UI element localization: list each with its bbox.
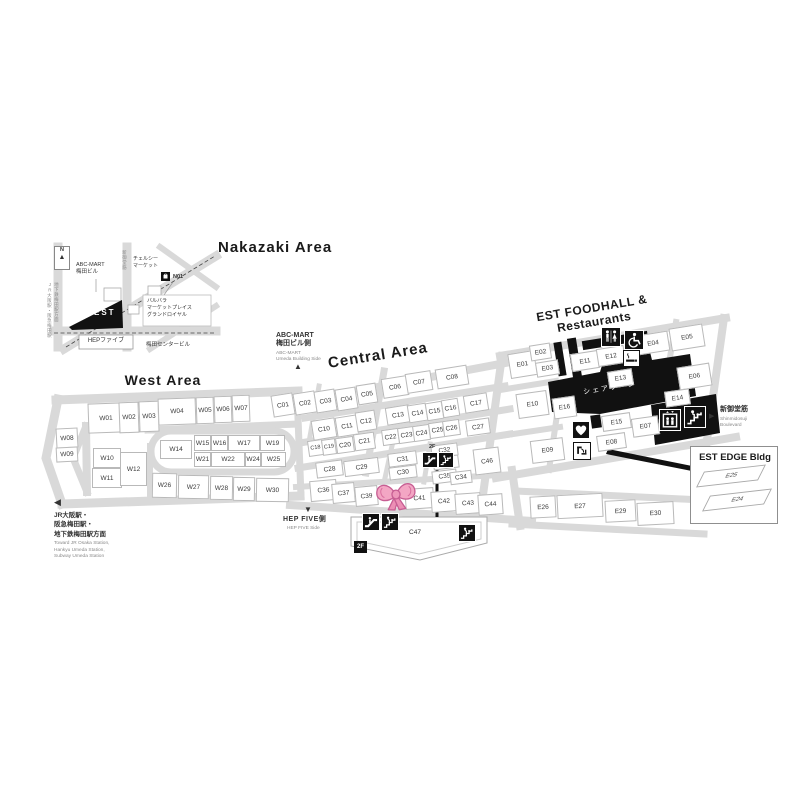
inset-road-label: 新御堂筋 (122, 250, 127, 280)
est-floor-map: Nakazaki Area N ▲ JR大阪駅・阪急梅田駅 地下鉄梅田駅方面 新… (0, 0, 800, 800)
restroom-icon (601, 327, 621, 347)
unit-C21: C21 (353, 432, 376, 452)
north-compass-icon: N (55, 247, 69, 254)
drinking-fountain-icon (573, 442, 591, 460)
unit-W04: W04 (158, 397, 197, 425)
compass-box: N ▲ (54, 246, 70, 270)
unit-C27: C27 (465, 417, 491, 436)
unit-W25: W25 (261, 452, 286, 467)
abc-mart-direction-en: ABC-MART Umeda Building Side (276, 351, 321, 363)
unit-C34: C34 (449, 470, 472, 486)
unit-C28: C28 (315, 459, 344, 478)
unit-E07: E07 (631, 415, 660, 438)
unit-W21: W21 (194, 452, 211, 467)
arrow-down-icon: ▼ (304, 505, 312, 515)
unit-W19: W19 (260, 435, 285, 451)
unit-W17: W17 (228, 435, 260, 451)
stairs-icon-central (438, 452, 454, 468)
arrow-left-icon: ◀ (54, 497, 61, 508)
unit-E30: E30 (636, 501, 674, 526)
unit-W15: W15 (194, 435, 211, 451)
inset-barbara-label: バルバラ マーケットプレイス グランドロイヤル (147, 298, 192, 319)
stations-direction-en: Toward JR Osaka Station, Hankyu Umeda St… (54, 541, 109, 561)
unit-E14: E14 (664, 388, 691, 407)
unit-W02: W02 (118, 402, 139, 434)
unit-W10: W10 (93, 448, 121, 468)
arrow-right-icon: ▶ (709, 413, 714, 421)
unit-C26: C26 (442, 419, 461, 437)
unit-E29: E29 (604, 499, 636, 523)
unit-E09: E09 (530, 437, 566, 464)
abc-mart-direction-jp: ABC-MART 梅田ビル側 (276, 332, 314, 349)
unit-E10: E10 (515, 390, 549, 419)
unit-C07: C07 (405, 370, 434, 394)
hep-five-direction-jp: HEP FIVE側 (283, 516, 326, 524)
unit-W09: W09 (56, 446, 79, 462)
unit-C46: C46 (473, 447, 502, 476)
inset-chelsea-label: チェルシー マーケット (133, 256, 158, 269)
unit-C47-label: C47 (393, 529, 437, 537)
unit-W12: W12 (120, 452, 147, 486)
compass-needle-icon: ▲ (55, 254, 69, 261)
arrow-up-icon: ▲ (294, 362, 302, 372)
unit-W14: W14 (160, 440, 192, 459)
unit-W06: W06 (214, 396, 233, 424)
unit-W16: W16 (211, 435, 228, 451)
unit-W27: W27 (178, 475, 209, 500)
unit-E26: E26 (529, 495, 556, 518)
inset-est-label: EST (94, 308, 116, 318)
west-area-title: West Area (108, 372, 218, 389)
aed-heart-icon (572, 421, 590, 439)
unit-W05: W05 (196, 397, 215, 425)
escalator-icon-central (422, 452, 438, 468)
unit-C37: C37 (331, 482, 356, 504)
unit-W07: W07 (232, 395, 251, 423)
stairs-icon-c47-right (458, 524, 476, 542)
unit-C17: C17 (463, 392, 490, 414)
unit-W22: W22 (211, 452, 245, 467)
wheelchair-icon (624, 330, 644, 350)
est-edge-title: EST EDGE Bldg (693, 452, 777, 463)
unit-C05: C05 (356, 383, 379, 406)
unit-E27: E27 (556, 493, 603, 519)
unit-W24: W24 (245, 452, 261, 467)
inset-station-vertical-2: 地下鉄梅田駅方面 (54, 282, 59, 344)
unit-C20: C20 (335, 436, 355, 454)
stairs-icon-east (684, 406, 706, 428)
stations-direction-jp: JR大阪駅・ 阪急梅田駅・ 地下鉄梅田駅方面 (54, 511, 106, 539)
escalator-icon-c47 (362, 513, 380, 531)
nakazaki-area-title: Nakazaki Area (218, 239, 332, 257)
unit-W08: W08 (55, 427, 78, 448)
unit-W11: W11 (92, 468, 122, 488)
smoking-area-icon (623, 350, 640, 367)
inset-station-vertical-1: JR大阪駅・阪急梅田駅 (47, 282, 52, 344)
inset-n01-label: N01 (173, 274, 183, 281)
inset-umeda-center-label: 梅田センタービル (146, 342, 190, 349)
shinmidosuji-jp: 新御堂筋 (720, 406, 748, 414)
unit-C04: C04 (334, 386, 358, 411)
unit-W28: W28 (210, 476, 233, 500)
unit-W29: W29 (233, 477, 255, 501)
unit-W03: W03 (138, 401, 159, 433)
inset-abc-mart-label: ABC-MART 梅田ビル (76, 262, 105, 276)
unit-W26: W26 (152, 473, 177, 498)
unit-C12: C12 (355, 410, 378, 433)
inset-hep-five-label: HEPファイブ (80, 338, 132, 345)
elevator-icon (659, 409, 681, 431)
pink-bow-marker (373, 476, 419, 514)
nakazaki-title-text: Nakazaki Area (218, 239, 332, 256)
shinmidosuji-en: Shinmidosuji Boulevard (720, 417, 747, 429)
unit-W30: W30 (256, 478, 289, 503)
hep-five-direction-en: HEP FIVE Side (287, 526, 320, 532)
unit-E02: E02 (529, 342, 552, 361)
unit-C16: C16 (441, 398, 461, 418)
floor-2f-badge: 2F (354, 541, 367, 553)
floor-2f-small-label: 2F (429, 444, 435, 451)
unit-C44: C44 (477, 493, 503, 516)
